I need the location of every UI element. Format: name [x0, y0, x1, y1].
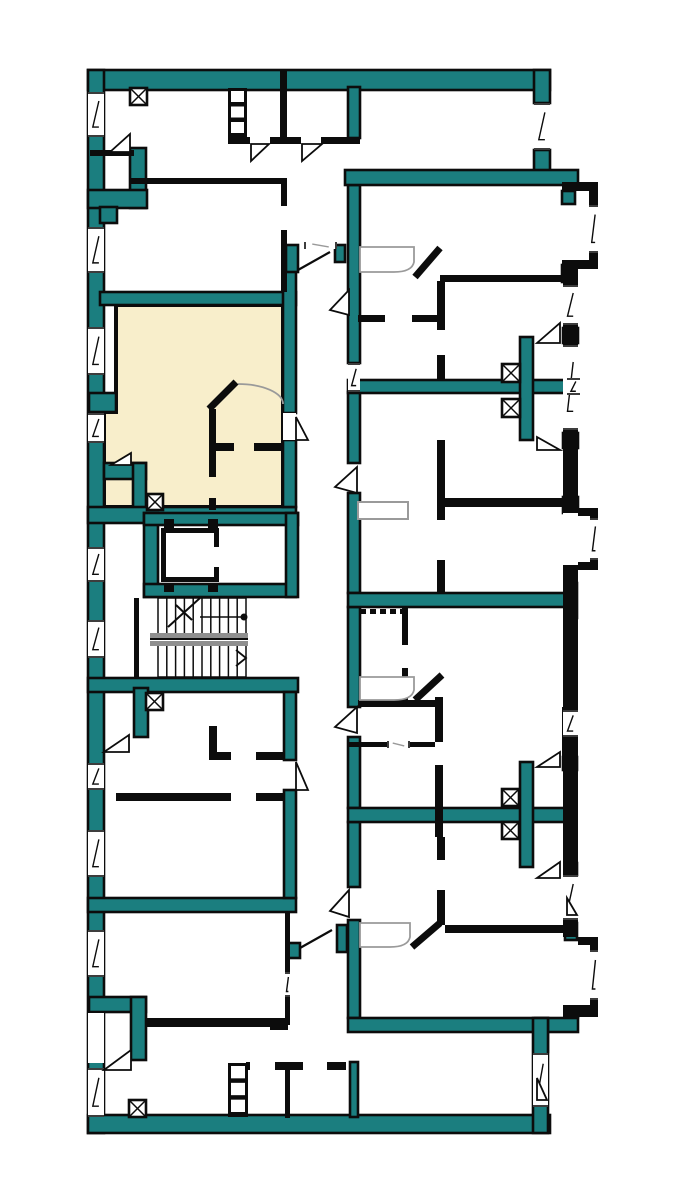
door-leaf-lines: [298, 252, 332, 948]
floor-plan-canvas: [0, 0, 674, 1200]
floor-plan-page: [0, 0, 674, 1200]
dashed-boundary: [360, 609, 406, 614]
structural-walls: [88, 70, 578, 1133]
fixture-symbols: [358, 502, 408, 519]
vent-stack-symbols: [228, 88, 248, 1117]
staircase-symbol: [150, 598, 248, 677]
